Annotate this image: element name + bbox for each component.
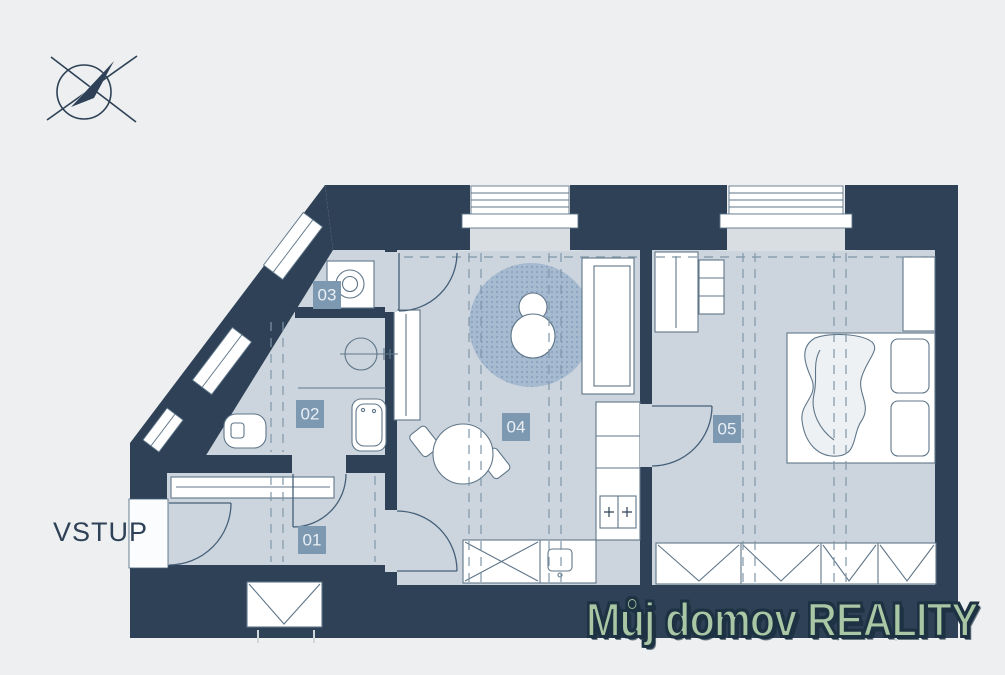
compass-icon [47,56,137,122]
window-icon [720,186,852,228]
door-opening [385,510,397,572]
window-recess-2 [716,228,856,251]
room-badge-01-label: 01 [303,531,322,550]
room-badge-05-label: 05 [718,420,737,439]
toilet-icon [224,414,266,448]
cabinet-icon [394,310,420,420]
floorplan-drawing: 01 02 03 04 05 VSTUP [0,0,1005,675]
room-badge-01: 01 [298,526,326,554]
bathtub-icon [352,399,386,451]
watermark: Můj domov REALITY [586,592,978,647]
pillow-icon [891,401,929,456]
door-opening [385,252,397,312]
room-badge-05: 05 [713,415,741,443]
room-badge-02-label: 02 [301,405,320,424]
door-opening [640,404,652,467]
floorplan-page: 01 02 03 04 05 VSTUP Můj domov REALITY [0,0,1005,675]
door-opening [292,455,346,473]
wall-02-01 [167,455,397,473]
sofa-icon [582,258,634,394]
window-recess-1 [458,228,582,251]
entrance-label: VSTUP [53,517,148,547]
entry-niche-icon [247,582,322,627]
bed-icon [787,333,935,463]
closet-row-icon [656,543,936,584]
wall-03-02 [295,307,397,318]
room-badge-03-label: 03 [318,286,337,305]
room-badge-03: 03 [313,281,341,309]
wall-top-mid [570,185,727,250]
window-icon [462,186,578,228]
pillow-icon [891,339,929,393]
stove-icon [600,496,636,528]
hall-wardrobe-icon [171,477,334,498]
room-badge-02: 02 [296,400,324,428]
wall-top-left [325,185,470,250]
room-badge-04-label: 04 [507,418,526,437]
room-badge-04: 04 [502,413,530,441]
wall-right [935,185,958,638]
